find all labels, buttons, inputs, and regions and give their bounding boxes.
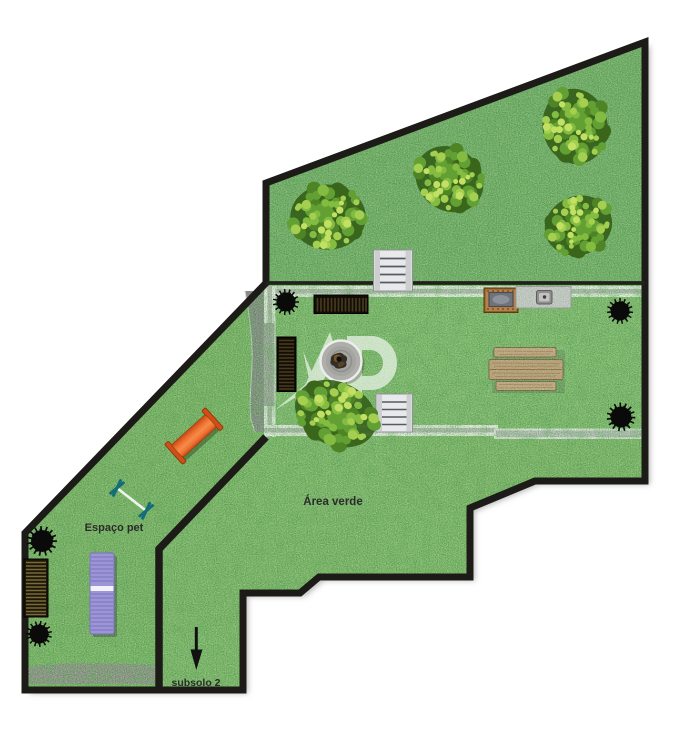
svg-text:subsolo 2: subsolo 2: [171, 677, 220, 689]
svg-text:Área verde: Área verde: [303, 495, 362, 508]
svg-text:Espaço pet: Espaço pet: [85, 522, 144, 534]
